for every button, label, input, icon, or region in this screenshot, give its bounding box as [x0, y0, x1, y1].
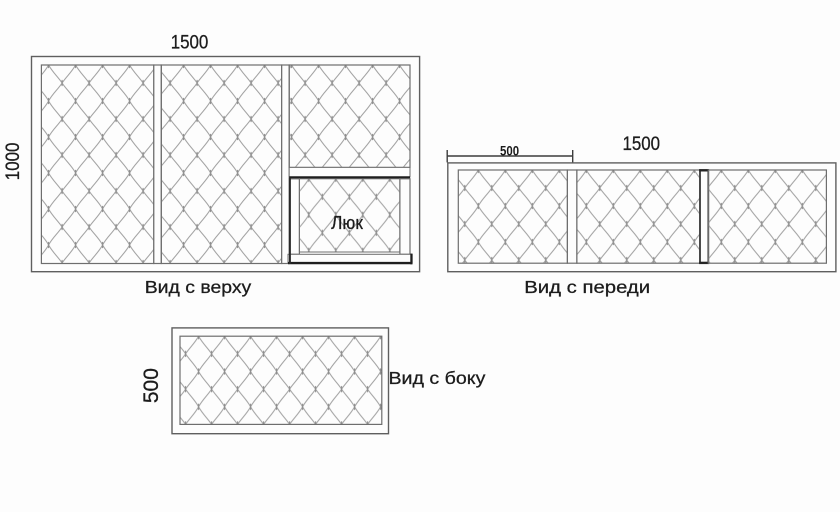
svg-text:Люк: Люк: [331, 212, 363, 233]
svg-text:1500: 1500: [171, 31, 209, 52]
svg-text:1500: 1500: [623, 133, 661, 154]
svg-text:Вид с боку: Вид с боку: [389, 368, 487, 388]
svg-text:1000: 1000: [2, 143, 23, 181]
svg-text:500: 500: [500, 144, 519, 159]
svg-text:Вид с переди: Вид с переди: [524, 278, 650, 298]
svg-text:500: 500: [140, 368, 163, 403]
svg-text:Вид с верху: Вид с верху: [145, 277, 252, 297]
